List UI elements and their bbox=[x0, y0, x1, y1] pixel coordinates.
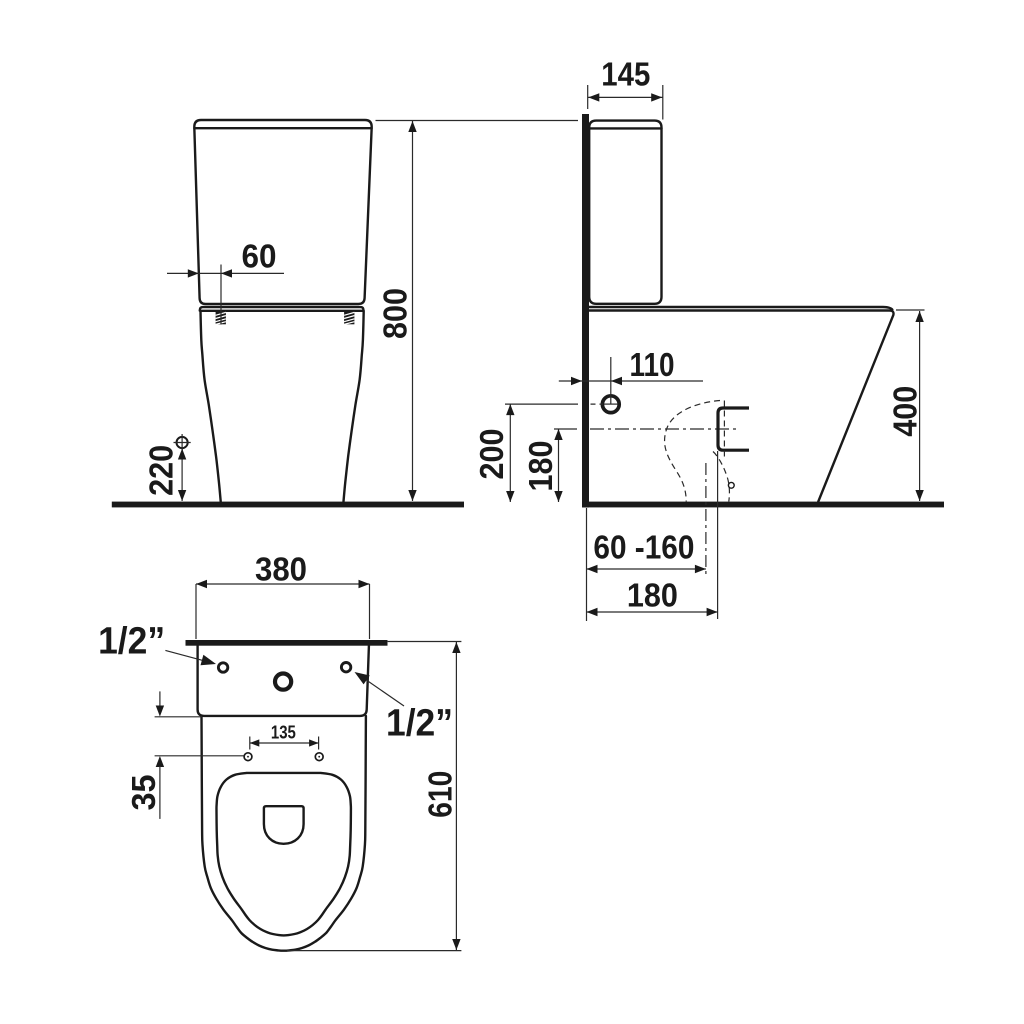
svg-text:60 -160: 60 -160 bbox=[593, 529, 694, 566]
svg-text:110: 110 bbox=[630, 346, 675, 383]
svg-text:60: 60 bbox=[242, 237, 277, 274]
svg-text:380: 380 bbox=[255, 551, 307, 588]
svg-text:800: 800 bbox=[376, 288, 413, 339]
svg-text:220: 220 bbox=[143, 445, 180, 496]
svg-text:180: 180 bbox=[522, 441, 559, 492]
svg-text:400: 400 bbox=[886, 386, 923, 437]
svg-text:610: 610 bbox=[421, 771, 458, 818]
svg-text:145: 145 bbox=[601, 56, 650, 93]
svg-text:35: 35 bbox=[125, 775, 162, 811]
svg-text:1/2”: 1/2” bbox=[98, 621, 165, 663]
svg-text:1/2”: 1/2” bbox=[386, 703, 453, 745]
svg-text:135: 135 bbox=[271, 721, 296, 742]
svg-text:180: 180 bbox=[627, 576, 678, 613]
svg-text:200: 200 bbox=[473, 429, 510, 480]
